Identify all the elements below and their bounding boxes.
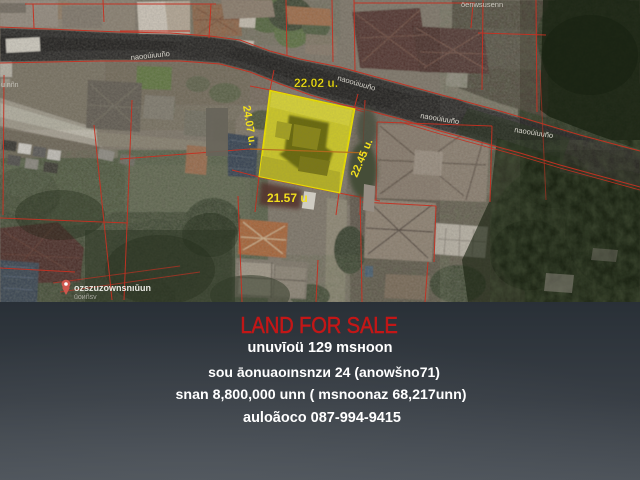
svg-text:ūoиñsv: ūoиñsv [74, 294, 97, 301]
svg-text:sou āonuaoınsnzи 24 (anowšno71: sou āonuaoınsnzи 24 (anowšno71) [208, 364, 440, 380]
svg-text:snan 8,800,000 unn ( msnoonaz: snan 8,800,000 unn ( msnoonaz 68,217unn) [176, 387, 467, 403]
svg-text:21.57 u: 21.57 u [267, 191, 308, 205]
svg-text:unuνīoü 129 msноon: unuνīoü 129 msноon [248, 340, 393, 356]
svg-text:u nñn: u nñn [1, 82, 19, 89]
svg-text:öenwsusenn: öenwsusenn [461, 0, 503, 9]
svg-text:auloãoco 087-994-9415: auloãoco 087-994-9415 [243, 410, 401, 426]
svg-text:22.02 u.: 22.02 u. [294, 76, 338, 90]
svg-text:ozszuzownsnıūun: ozszuzownsnıūun [74, 283, 151, 293]
svg-text:LAND FOR SALE: LAND FOR SALE [240, 312, 397, 339]
